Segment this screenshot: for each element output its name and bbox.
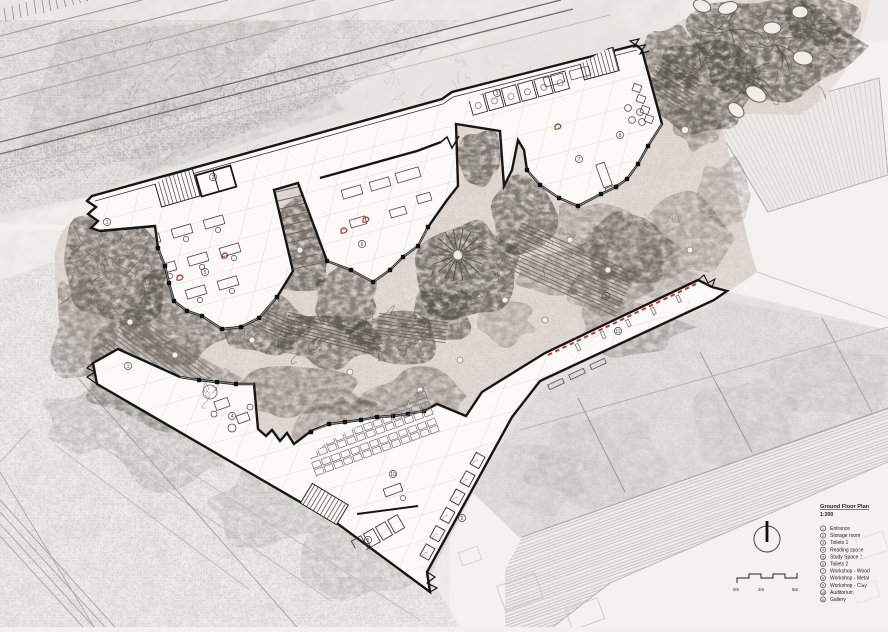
svg-text:Auditorium: Auditorium xyxy=(830,590,854,596)
svg-text:8: 8 xyxy=(619,133,622,139)
svg-text:11: 11 xyxy=(615,329,620,335)
svg-text:Workshop - Wood: Workshop - Wood xyxy=(830,569,870,575)
svg-text:10: 10 xyxy=(821,591,825,595)
svg-text:Workshop - Clay: Workshop - Clay xyxy=(830,583,867,589)
svg-text:2: 2 xyxy=(461,516,464,522)
svg-text:10: 10 xyxy=(390,472,396,478)
svg-text:4: 4 xyxy=(822,548,824,552)
svg-text:Toilets 2: Toilets 2 xyxy=(830,562,849,568)
svg-text:2: 2 xyxy=(212,175,215,181)
svg-text:5: 5 xyxy=(204,270,207,276)
svg-text:9: 9 xyxy=(605,294,608,300)
svg-text:2m: 2m xyxy=(758,587,765,592)
svg-text:Toilets 1: Toilets 1 xyxy=(830,540,849,546)
svg-text:Workshop - Metal: Workshop - Metal xyxy=(830,576,869,582)
svg-text:1: 1 xyxy=(822,527,824,531)
svg-text:7: 7 xyxy=(822,570,824,574)
svg-text:0m: 0m xyxy=(733,587,740,592)
svg-text:4: 4 xyxy=(231,414,234,420)
svg-text:5: 5 xyxy=(822,555,824,559)
svg-text:9: 9 xyxy=(822,584,824,588)
svg-text:3: 3 xyxy=(822,541,824,545)
svg-text:Study Space 1: Study Space 1 xyxy=(830,554,863,560)
svg-text:6: 6 xyxy=(367,538,370,544)
svg-text:1: 1 xyxy=(106,220,109,226)
svg-text:Storage room: Storage room xyxy=(830,533,860,539)
svg-text:3: 3 xyxy=(496,91,499,97)
svg-text:1: 1 xyxy=(127,364,130,370)
svg-text:6: 6 xyxy=(361,242,364,248)
svg-text:11: 11 xyxy=(821,598,825,602)
svg-text:Ground Floor Plan: Ground Floor Plan xyxy=(820,504,870,510)
svg-text:8: 8 xyxy=(822,577,824,581)
svg-text:6: 6 xyxy=(822,562,824,566)
svg-text:Gallery: Gallery xyxy=(830,597,846,603)
svg-text:1:200: 1:200 xyxy=(820,512,833,518)
svg-text:2: 2 xyxy=(822,534,824,538)
svg-text:Entrance: Entrance xyxy=(830,526,850,532)
svg-text:7: 7 xyxy=(578,157,581,163)
svg-text:5m: 5m xyxy=(792,587,799,592)
